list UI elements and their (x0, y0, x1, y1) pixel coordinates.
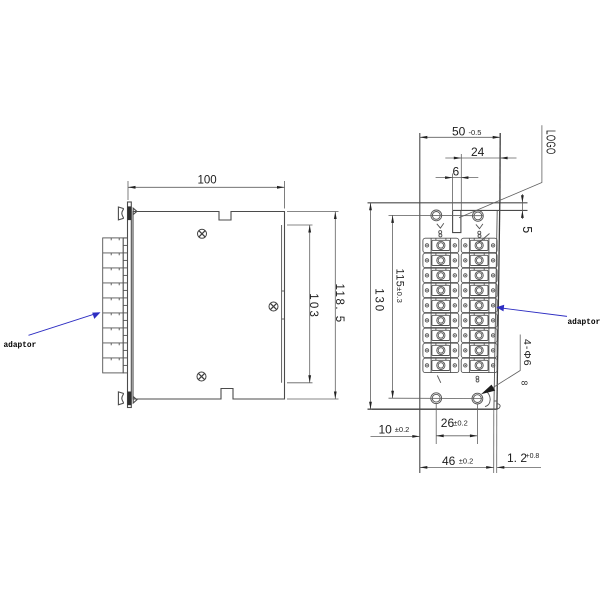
svg-text:46: 46 (442, 454, 456, 468)
svg-text:1. 2: 1. 2 (507, 451, 527, 465)
svg-text:+0.8: +0.8 (526, 453, 540, 460)
svg-text:adaptor: adaptor (568, 319, 600, 327)
svg-text:±0.2: ±0.2 (395, 425, 410, 434)
svg-text:5: 5 (520, 226, 534, 233)
svg-text:115±0.3: 115±0.3 (393, 269, 405, 304)
svg-text:adaptor: adaptor (4, 342, 37, 350)
svg-text:130: 130 (373, 288, 385, 313)
svg-text:LOGO: LOGO (543, 130, 557, 155)
svg-text:6: 6 (453, 164, 460, 178)
svg-text:118. 5: 118. 5 (333, 284, 345, 324)
svg-text:24: 24 (471, 145, 485, 159)
svg-text:103: 103 (307, 293, 319, 319)
svg-text:±0.2: ±0.2 (459, 456, 474, 465)
svg-text:50: 50 (452, 125, 466, 139)
svg-text:100: 100 (198, 174, 217, 186)
svg-text:4-Φ6: 4-Φ6 (521, 339, 533, 367)
svg-text:10: 10 (379, 422, 393, 436)
svg-text:8: 8 (520, 381, 530, 386)
svg-text:-0.5: -0.5 (469, 128, 482, 137)
svg-text:±0.2: ±0.2 (453, 418, 468, 427)
